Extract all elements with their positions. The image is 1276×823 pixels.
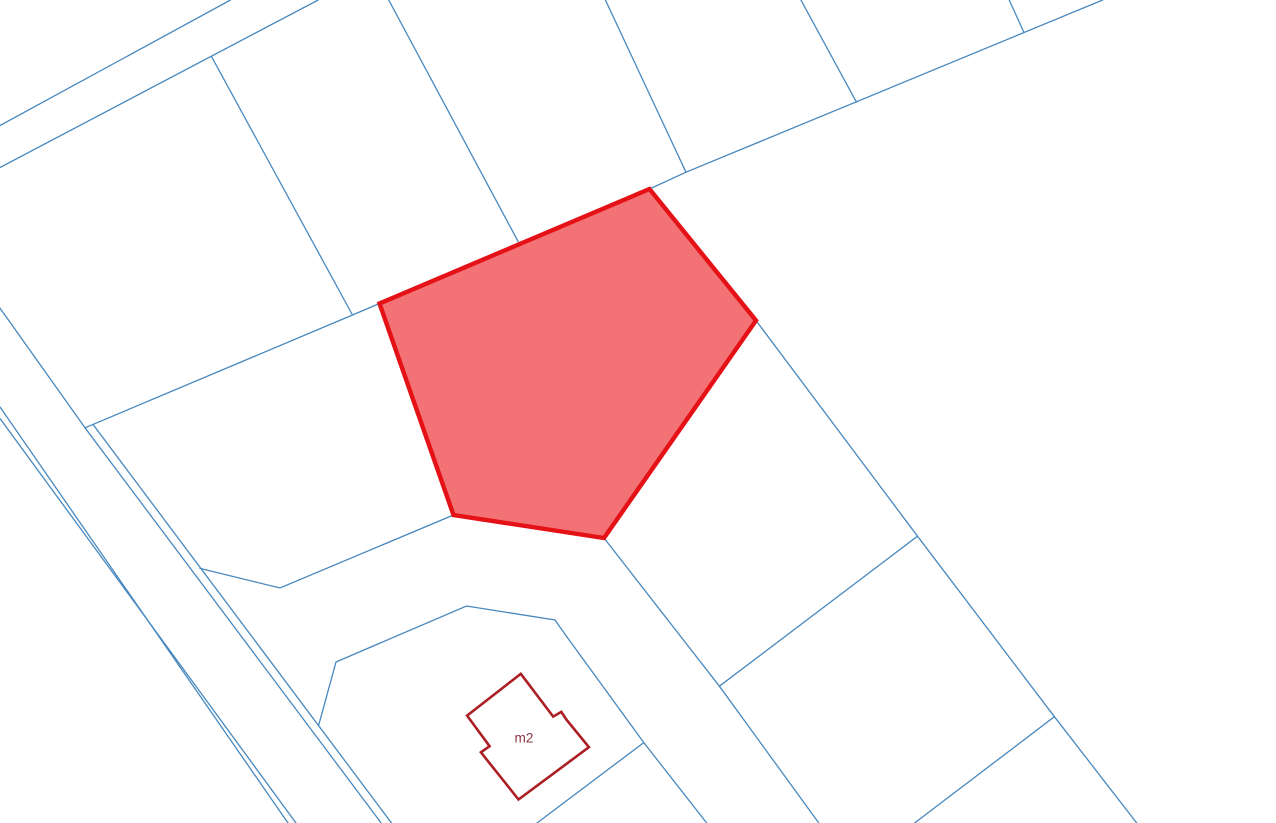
- svg-text:m2: m2: [515, 731, 534, 746]
